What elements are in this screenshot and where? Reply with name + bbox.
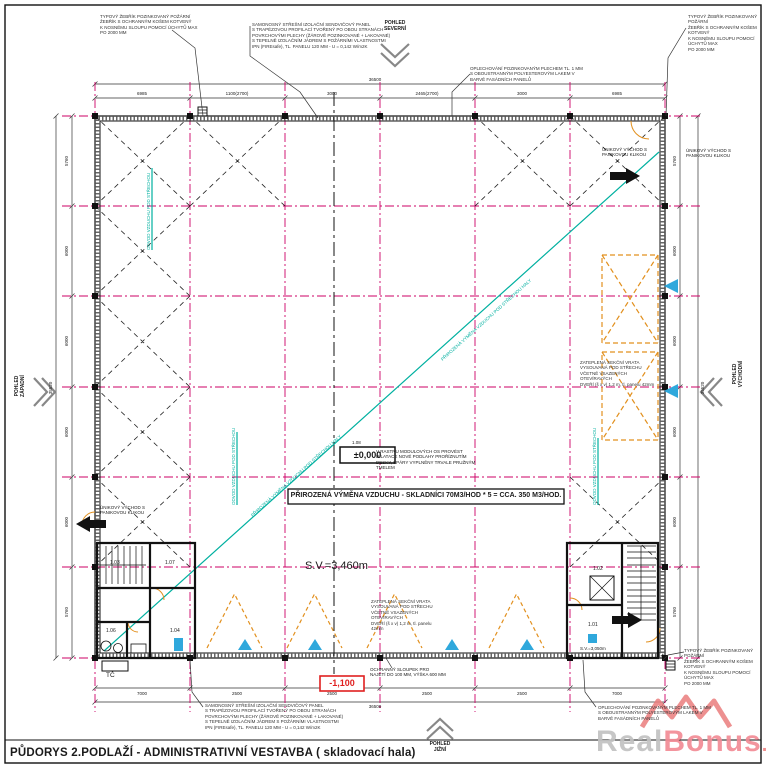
dim-right-1: 5760 [672, 143, 677, 179]
dim-left-overall: 35520 [48, 368, 53, 408]
dim-bottom-1: 7000 [122, 691, 162, 696]
dim-right-3: 6000 [672, 323, 677, 359]
stair-left [100, 546, 146, 584]
watermark-real: Real [596, 725, 663, 758]
room-label-107: 1.07 [165, 560, 175, 566]
view-label-west: POHLED ZÁPADNÍ [14, 358, 26, 414]
dim-left-5: 6000 [64, 504, 69, 540]
view-label-east: POHLED VÝCHODNÍ [732, 346, 744, 402]
note-ladder-top-left: TYPOVÝ ŽEBŘÍK POZINKOVANÝ POŽÁRNÍ ŽEBŘÍK… [100, 14, 220, 36]
dim-left-1: 5760 [64, 143, 69, 179]
dim-right-overall: 35520 [700, 368, 705, 408]
building-walls [92, 107, 675, 670]
dim-bottom-5: 2500 [502, 691, 542, 696]
air-exchange-label: PŘIROZENÁ VÝMĚNA VZDUCHU - SKLADNÍCI 70M… [290, 492, 562, 501]
watermark: RealBonus.cz [596, 724, 766, 761]
room-label-101: 1.01 [588, 622, 598, 628]
heat-pump-label: TČ [106, 672, 115, 680]
dim-top-5: 3000 [502, 91, 542, 96]
dim-top-1: 6985 [122, 91, 162, 96]
dim-bottom-3: 2500 [312, 691, 352, 696]
dim-top-6: 6985 [597, 91, 637, 96]
note-flashing-top-right: OPLECHOVÁNÍ POZINKOVANÝM PLECHEM TL. 1 M… [470, 66, 640, 82]
note-exit-top-right-inside: ÚNIKOVÝ VÝCHOD S PANIKOVOU KLIKOU [602, 147, 656, 158]
room-label-103: 1.03 [110, 560, 120, 566]
note-exit-left: ÚNIKOVÝ VÝCHOD S PANIKOVOU KLIKOU [100, 505, 158, 516]
dim-left-6: 5760 [64, 594, 69, 630]
note-gate-right: ZATEPLENÁ SEKČNÍ VRATA VYSOUVANÁ POD STŘ… [580, 360, 660, 387]
hall-room-number: 1.08 [352, 440, 361, 445]
drawing-sheet: PŮDORYS 2.PODLAŽÍ - ADMINISTRATIVNÍ VEST… [0, 0, 766, 768]
note-flashing-bottom-right: OPLECHOVÁNÍ POZINKOVANÝM PLECHEM TL. 1 M… [598, 705, 748, 721]
dim-right-2: 6000 [672, 233, 677, 269]
hall-clear-height: S.V.=3,460m [305, 560, 368, 573]
dim-bottom-overall: 36500 [355, 704, 395, 709]
watermark-tld: .cz [762, 734, 766, 756]
sink-fixture [131, 644, 146, 653]
south-chevron-icon [427, 719, 453, 731]
dim-top-overall: 36500 [355, 77, 395, 82]
note-bollard: OCHRANNÝ SLOUPEK PRO NAJETÍ DO 100 MM, V… [370, 667, 470, 678]
dim-bottom-2: 2500 [217, 691, 257, 696]
dim-bottom-6: 7000 [597, 691, 637, 696]
vent-label-1: ODVOD VZDUCHU POD STŘECHOU [146, 173, 151, 250]
dim-left-3: 6000 [64, 323, 69, 359]
room-label-102: 1.02 [593, 566, 603, 572]
vent-label-3: ODVOD VZDUCHU POD STŘECHOU [592, 428, 597, 505]
note-roof-panel-top: SAMONOSNÝ STŘEŠNÍ IZOLAČNÍ SENDVIČOVÝ PA… [252, 22, 412, 49]
exit-arrows [76, 168, 642, 628]
dim-top-2: 1100(2700) [217, 91, 257, 96]
note-ladder-bottom-right: TYPOVÝ ŽEBŘÍK POZINKOVANÝ POŽÁRNÍ ŽEBŘÍK… [684, 648, 762, 686]
fire-ladder-bottom [666, 661, 675, 670]
dim-bottom-4: 2500 [407, 691, 447, 696]
note-exit-top-right-outside: ÚNIKOVÝ VÝCHOD S PANIKOVOU KLIKOU [686, 148, 734, 159]
drawing-title: PŮDORYS 2.PODLAŽÍ - ADMINISTRATIVNÍ VEST… [10, 746, 416, 760]
ventilation-lines [104, 152, 659, 651]
note-gate-bottom: ZATEPLENÁ SEKČNÍ VRATA VYSOUVANÁ POD STŘ… [371, 599, 437, 632]
wc-fixture [114, 644, 123, 653]
dim-top-4: 2465(2700) [407, 91, 447, 96]
view-label-south: POHLED JIŽNÍ [420, 741, 460, 753]
heat-pump-unit [102, 661, 128, 671]
dim-right-5: 6000 [672, 504, 677, 540]
dim-right-6: 5760 [672, 594, 677, 630]
dim-left-4: 6000 [64, 414, 69, 450]
zero-level-label: ±0,000 [341, 450, 394, 461]
sectional-gates [82, 121, 660, 648]
dim-left-2: 6000 [64, 233, 69, 269]
room-label-104: 1.04 [170, 628, 180, 634]
vent-label-2: ODVOD VZDUCHU POD STŘECHOU [231, 428, 236, 505]
note-ladder-top-right: TYPOVÝ ŽEBŘÍK POZINKOVANÝ POŽÁRNÍ ŽEBŘÍK… [688, 14, 762, 52]
watermark-bonus: Bonus [663, 725, 761, 758]
room-label-106: 1.06 [106, 628, 116, 634]
minus-level-label: -1,100 [321, 678, 363, 689]
stair-clear-height: S.V.=3,050m [580, 646, 606, 651]
stair-right [627, 546, 656, 620]
dim-top-3: 3000 [312, 91, 352, 96]
dim-right-4: 6000 [672, 414, 677, 450]
note-roof-panel-bottom: SAMONOSNÝ STŘEŠNÍ IZOLAČNÍ SENDVIČOVÝ PA… [205, 703, 375, 730]
